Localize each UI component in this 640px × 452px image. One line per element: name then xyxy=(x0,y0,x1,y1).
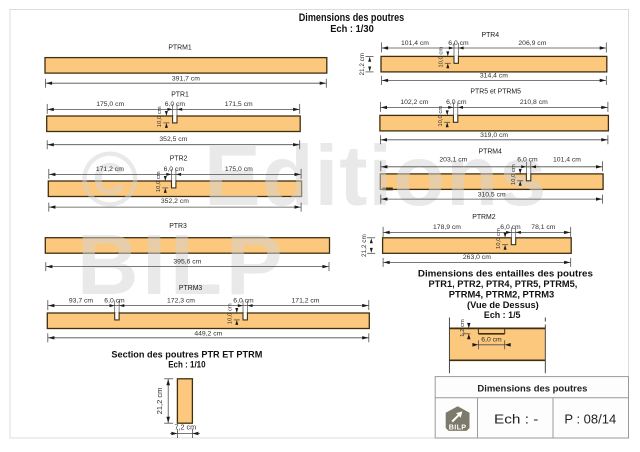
svg-text:172,3 cm: 172,3 cm xyxy=(167,298,195,305)
svg-text:P : 08/14: P : 08/14 xyxy=(564,411,616,426)
svg-text:Ech : 1/5: Ech : 1/5 xyxy=(484,310,521,320)
svg-text:93,7 cm: 93,7 cm xyxy=(69,298,94,305)
svg-text:Dimensions des poutres: Dimensions des poutres xyxy=(299,12,405,24)
svg-text:102,2 cm: 102,2 cm xyxy=(400,99,428,106)
svg-text:10,0 cm: 10,0 cm xyxy=(496,228,502,249)
svg-text:352,5 cm: 352,5 cm xyxy=(159,136,187,143)
svg-text:Editions: Editions xyxy=(204,129,547,224)
svg-text:171,2 cm: 171,2 cm xyxy=(96,166,124,173)
svg-text:6,0 cm: 6,0 cm xyxy=(233,298,254,305)
svg-text:6,0 cm: 6,0 cm xyxy=(165,101,186,108)
svg-text:203,1 cm: 203,1 cm xyxy=(439,156,467,163)
svg-text:6,0 cm: 6,0 cm xyxy=(448,40,469,47)
svg-text:PTR1: PTR1 xyxy=(171,91,189,98)
svg-text:PTR5 et PTRM5: PTR5 et PTRM5 xyxy=(470,88,521,95)
svg-text:175,0 cm: 175,0 cm xyxy=(225,166,253,173)
svg-text:10,0 cm: 10,0 cm xyxy=(511,164,517,185)
svg-text:PTRM1: PTRM1 xyxy=(168,44,192,51)
svg-text:PTRM4, PTRM2, PTRM3: PTRM4, PTRM2, PTRM3 xyxy=(449,290,555,300)
svg-text:352,2 cm: 352,2 cm xyxy=(161,198,189,205)
svg-text:6,0 cm: 6,0 cm xyxy=(481,337,502,344)
svg-text:391,7 cm: 391,7 cm xyxy=(172,75,200,82)
svg-text:BILP: BILP xyxy=(449,423,467,432)
svg-text:263,0 cm: 263,0 cm xyxy=(463,254,491,261)
svg-text:Ech : 1/30: Ech : 1/30 xyxy=(330,24,374,35)
svg-text:6,0 cm: 6,0 cm xyxy=(517,156,538,163)
svg-text:78,1 cm: 78,1 cm xyxy=(531,224,556,231)
svg-text:PTR3: PTR3 xyxy=(169,223,187,230)
svg-text:10,0 cm: 10,0 cm xyxy=(228,303,234,324)
svg-text:101,4 cm: 101,4 cm xyxy=(553,156,581,163)
svg-text:10,0 cm: 10,0 cm xyxy=(438,106,444,127)
svg-text:319,0 cm: 319,0 cm xyxy=(480,132,508,139)
svg-text:PTR2: PTR2 xyxy=(170,156,188,163)
svg-text:206,9 cm: 206,9 cm xyxy=(518,40,546,47)
svg-text:Dimensions des entailles des p: Dimensions des entailles des poutres xyxy=(418,268,593,278)
svg-text:449,2 cm: 449,2 cm xyxy=(194,330,222,337)
svg-text:PTRM3: PTRM3 xyxy=(179,285,203,292)
svg-text:310,5 cm: 310,5 cm xyxy=(478,191,506,198)
svg-text:©: © xyxy=(81,135,138,223)
svg-text:PTR4: PTR4 xyxy=(481,32,499,39)
svg-text:PTRM4: PTRM4 xyxy=(479,149,503,156)
svg-text:210,8 cm: 210,8 cm xyxy=(520,99,548,106)
svg-text:10,0 cm: 10,0 cm xyxy=(156,171,162,192)
svg-text:Ech : 1/10: Ech : 1/10 xyxy=(168,359,205,369)
svg-text:6,0 cm: 6,0 cm xyxy=(500,224,521,231)
svg-text:101,4 cm: 101,4 cm xyxy=(401,40,429,47)
svg-text:395,6 cm: 395,6 cm xyxy=(173,259,201,266)
svg-text:178,9 cm: 178,9 cm xyxy=(433,224,461,231)
svg-text:Section des poutres PTR ET PTR: Section des poutres PTR ET PTRM xyxy=(111,350,262,360)
svg-text:Ech : -: Ech : - xyxy=(494,411,538,426)
svg-text:6,0 cm: 6,0 cm xyxy=(446,99,467,106)
svg-text:171,2 cm: 171,2 cm xyxy=(292,298,320,305)
svg-text:6,0 cm: 6,0 cm xyxy=(104,298,125,305)
svg-text:21,2 cm: 21,2 cm xyxy=(361,234,368,257)
svg-text:10,0 cm: 10,0 cm xyxy=(157,106,163,127)
svg-text:314,4 cm: 314,4 cm xyxy=(480,73,508,80)
svg-text:10,0 cm: 10,0 cm xyxy=(439,47,445,68)
svg-text:Dimensions des poutres: Dimensions des poutres xyxy=(477,384,587,394)
svg-text:PTRM2: PTRM2 xyxy=(472,214,496,221)
svg-text:171,5 cm: 171,5 cm xyxy=(225,101,253,108)
svg-text:175,0 cm: 175,0 cm xyxy=(96,101,124,108)
svg-text:(Vue de Dessus): (Vue de Dessus) xyxy=(467,300,539,310)
svg-text:21,2 cm: 21,2 cm xyxy=(155,388,164,415)
svg-text:6,0 cm: 6,0 cm xyxy=(164,166,185,173)
svg-text:PTR1, PTR2, PTR4, PTR5, PTRM5,: PTR1, PTR2, PTR4, PTR5, PTRM5, xyxy=(429,279,578,289)
svg-text:21,2 cm: 21,2 cm xyxy=(359,53,366,76)
